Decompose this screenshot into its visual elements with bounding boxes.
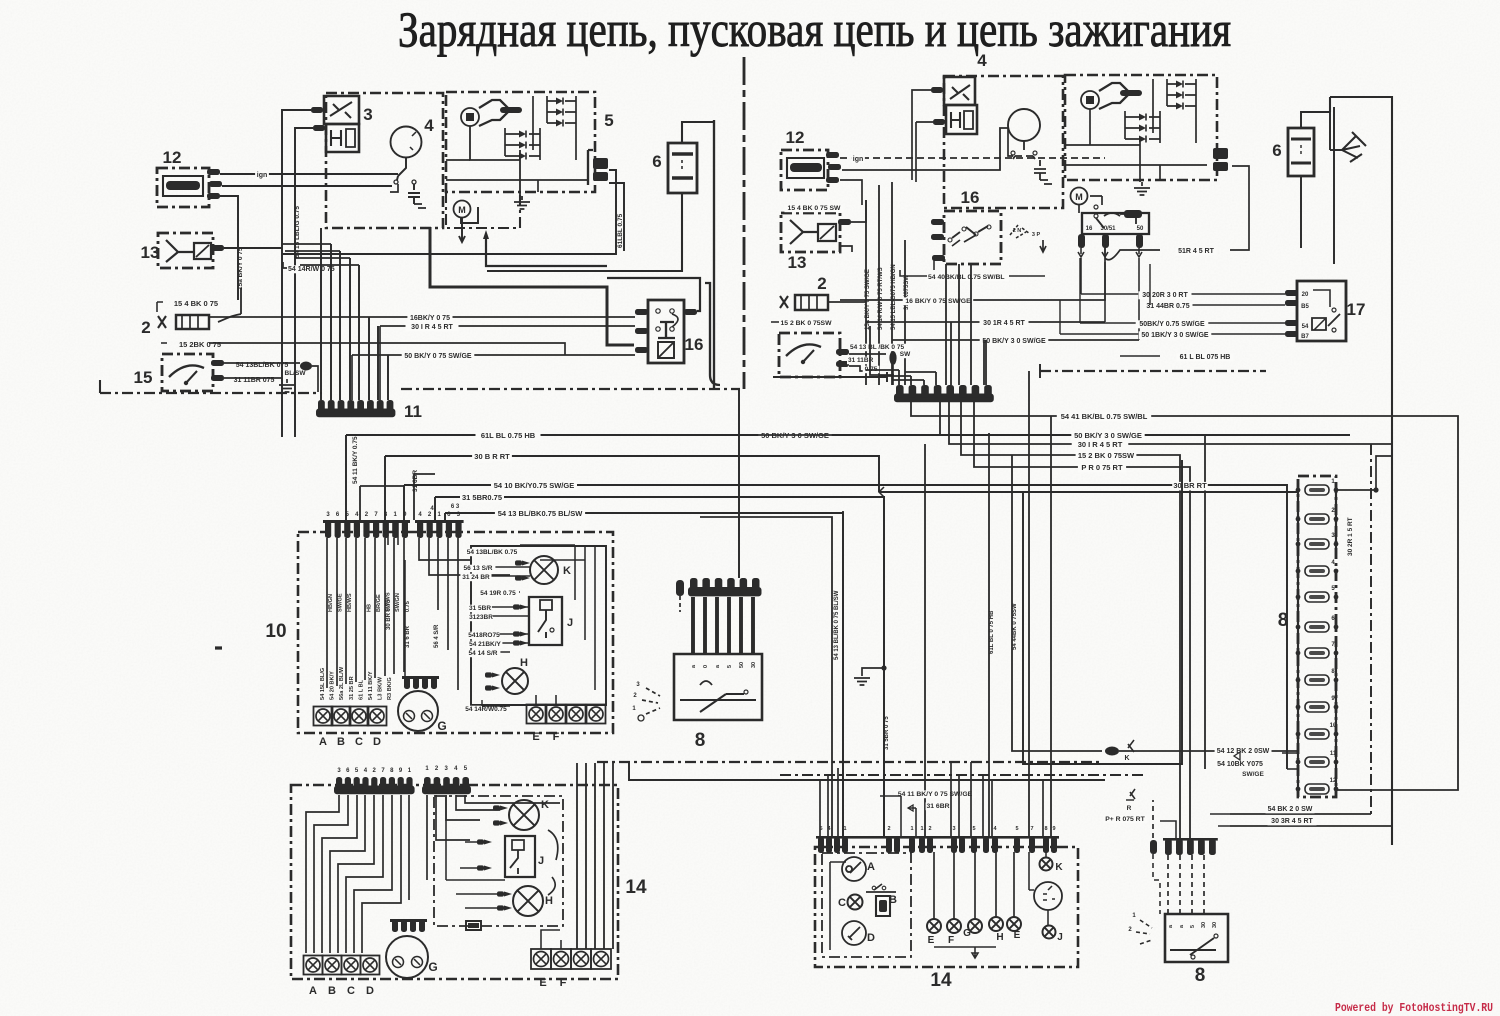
- svg-text:M: M: [458, 205, 466, 215]
- svg-text:61LBL 0.75: 61LBL 0.75: [617, 213, 624, 248]
- svg-text:30 I R 4 5 RT: 30 I R 4 5 RT: [411, 324, 453, 331]
- svg-text:13: 13: [788, 253, 807, 272]
- svg-text:54 14R/W0.75: 54 14R/W0.75: [465, 706, 507, 713]
- svg-text:50 BK/Y 0 75 SW/GE: 50 BK/Y 0 75 SW/GE: [404, 353, 472, 360]
- svg-text:31 6BR: 31 6BR: [412, 470, 419, 492]
- svg-text:31 6 BR: 31 6 BR: [405, 625, 411, 648]
- svg-text:B7: B7: [1301, 334, 1309, 340]
- svg-text:K: K: [1055, 862, 1063, 873]
- svg-text:54 13 BL /BK 0 75: 54 13 BL /BK 0 75: [850, 344, 904, 351]
- svg-text:G: G: [963, 928, 971, 939]
- svg-text:A: A: [319, 736, 327, 748]
- svg-text:M: M: [1075, 192, 1083, 202]
- svg-text:56a 2L BL/W: 56a 2L BL/W: [339, 666, 345, 700]
- svg-text:54 44BK 0 75SW: 54 44BK 0 75SW: [1012, 603, 1018, 650]
- svg-text:31 44BR 0.75: 31 44BR 0.75: [1146, 303, 1189, 310]
- svg-text:30 20R 3 0 RT: 30 20R 3 0 RT: [1142, 292, 1188, 299]
- svg-text:30 B R RT: 30 B R RT: [474, 452, 510, 461]
- svg-text:31 25 BR: 31 25 BR: [349, 676, 355, 700]
- svg-text:8: 8: [695, 730, 706, 751]
- svg-text:54 12 BK 2 0SW: 54 12 BK 2 0SW: [1217, 748, 1270, 755]
- svg-text:B5: B5: [1301, 304, 1309, 310]
- svg-text:54 15 LBL/G 0.75: 54 15 LBL/G 0.75: [294, 206, 301, 258]
- svg-text:31 6BR: 31 6BR: [926, 803, 949, 810]
- svg-text:SW/GE: SW/GE: [338, 593, 344, 612]
- svg-text:4: 4: [977, 51, 987, 70]
- svg-text:56 4 S/R: 56 4 S/R: [434, 624, 440, 648]
- svg-text:30: 30: [751, 662, 757, 668]
- svg-text:5: 5: [604, 111, 613, 130]
- svg-text:E: E: [532, 731, 539, 743]
- svg-text:A: A: [867, 861, 875, 873]
- svg-text:D: D: [373, 736, 381, 748]
- svg-text:50 1BK/Y 3 0 SW/GE: 50 1BK/Y 3 0 SW/GE: [1141, 332, 1209, 339]
- svg-text:H: H: [520, 657, 528, 669]
- svg-text:15a BK/Y 0 75: 15a BK/Y 0 75: [237, 247, 244, 290]
- svg-text:54 14 R/W 0 75 RT/WS: 54 14 R/W 0 75 RT/WS: [878, 267, 884, 330]
- svg-text:E: E: [928, 935, 935, 946]
- svg-text:6: 6: [652, 152, 661, 171]
- svg-text:F: F: [553, 731, 560, 743]
- svg-text:G: G: [428, 960, 437, 974]
- svg-text:8: 8: [1278, 610, 1289, 631]
- svg-text:16 BK/Y 0 75 SW/GE: 16 BK/Y 0 75 SW/GE: [905, 298, 971, 305]
- svg-text:31 5BR 0 75: 31 5BR 0 75: [884, 716, 890, 750]
- svg-text:A: A: [309, 985, 317, 997]
- svg-text:3: 3: [952, 826, 955, 832]
- svg-text:2: 2: [817, 274, 826, 293]
- svg-text:61L BL 0 75 HB: 61L BL 0 75 HB: [989, 610, 995, 654]
- svg-text:3: 3: [363, 105, 372, 124]
- svg-text:61 L BL 075 HB: 61 L BL 075 HB: [1180, 354, 1231, 361]
- svg-text:C: C: [355, 736, 363, 748]
- svg-text:5: 5: [1190, 925, 1196, 928]
- svg-text:54 11 BK/Y 0.75: 54 11 BK/Y 0.75: [352, 436, 359, 484]
- svg-text:J: J: [538, 855, 544, 867]
- svg-text:2: 2: [141, 318, 150, 337]
- svg-text:31 5BR: 31 5BR: [469, 605, 491, 612]
- svg-text:54 40BK/BL 0.75 SW/BL: 54 40BK/BL 0.75 SW/BL: [928, 274, 1005, 281]
- svg-text:BR/GE: BR/GE: [376, 594, 382, 612]
- svg-text:30 2R 1 5 RT: 30 2R 1 5 RT: [1347, 517, 1354, 556]
- svg-text:30: 30: [1212, 922, 1218, 928]
- svg-text:15 2 BK 0 75SW: 15 2 BK 0 75SW: [781, 320, 833, 327]
- svg-text:30 1R 4 5 RT: 30 1R 4 5 RT: [983, 320, 1025, 327]
- svg-text:H: H: [996, 932, 1003, 943]
- svg-text:F: F: [560, 977, 567, 989]
- svg-text:31 11BR 075: 31 11BR 075: [234, 377, 275, 384]
- svg-text:5418RO75: 5418RO75: [468, 632, 500, 639]
- svg-text:B: B: [337, 736, 345, 748]
- svg-text:E: E: [1014, 930, 1021, 941]
- svg-text:P R 0 75 RT: P R 0 75 RT: [1081, 463, 1123, 472]
- svg-text:16: 16: [685, 335, 704, 354]
- svg-text:ign: ign: [257, 172, 268, 179]
- svg-text:30 BR 0.75: 30 BR 0.75: [386, 599, 392, 630]
- svg-text:31 24 BR: 31 24 BR: [462, 574, 490, 581]
- svg-text:10: 10: [265, 621, 286, 642]
- svg-text:17: 17: [1347, 300, 1366, 319]
- svg-text:2: 2: [928, 826, 931, 832]
- svg-text:HB/WS: HB/WS: [347, 593, 353, 612]
- svg-text:54 21BK/Y: 54 21BK/Y: [469, 641, 501, 648]
- svg-text:16BK/Y 0 75: 16BK/Y 0 75: [410, 315, 450, 322]
- svg-text:12: 12: [1330, 778, 1337, 784]
- svg-text:ign: ign: [853, 156, 864, 163]
- svg-text:54 14R/W 0 75: 54 14R/W 0 75: [288, 266, 335, 273]
- svg-text:J: J: [1057, 932, 1063, 943]
- svg-text:H: H: [545, 895, 553, 907]
- svg-text:12: 12: [786, 128, 805, 147]
- svg-text:54 13 BL/BK 0 75 BL/SW: 54 13 BL/BK 0 75 BL/SW: [834, 590, 840, 660]
- svg-text:8: 8: [1044, 826, 1047, 832]
- svg-text:54 15 LBL/G075 HB/GN: 54 15 LBL/G075 HB/GN: [891, 264, 897, 330]
- svg-text:54 BK 2 0 SW: 54 BK 2 0 SW: [1268, 806, 1313, 813]
- svg-text:10: 10: [1330, 723, 1337, 729]
- svg-text:15 4 BK 0 75 SW: 15 4 BK 0 75 SW: [788, 205, 841, 212]
- svg-text:HB: HB: [366, 604, 372, 612]
- svg-text:30 BR RT: 30 BR RT: [1173, 481, 1207, 490]
- svg-text:SW/GE: SW/GE: [1242, 771, 1264, 778]
- svg-text:50: 50: [1137, 226, 1144, 232]
- svg-text:14: 14: [625, 877, 647, 898]
- svg-text:1: 1: [910, 826, 913, 832]
- svg-text:54 11 BK/Y 0 75 SW/GE: 54 11 BK/Y 0 75 SW/GE: [898, 791, 973, 798]
- svg-text:61 L BL: 61 L BL: [358, 679, 364, 700]
- svg-text:54 41 BK/BL 0.75 SW/BL: 54 41 BK/BL 0.75 SW/BL: [1061, 412, 1148, 421]
- svg-text:2: 2: [887, 826, 890, 832]
- svg-text:50: 50: [739, 662, 745, 668]
- svg-text:54 13 BL/BK0.75 BL/SW: 54 13 BL/BK0.75 BL/SW: [498, 509, 584, 518]
- svg-text:E: E: [539, 977, 546, 989]
- svg-text:P+ R 075 RT: P+ R 075 RT: [1105, 816, 1145, 823]
- svg-text:54 13BL/BK 075: 54 13BL/BK 075: [236, 362, 289, 369]
- svg-text:50 BK/Y 3 0 SW/GE: 50 BK/Y 3 0 SW/GE: [982, 338, 1046, 345]
- svg-text:B: B: [889, 894, 897, 906]
- svg-text:54 20 BK/Y: 54 20 BK/Y: [330, 671, 336, 700]
- svg-text:16: 16: [1086, 226, 1093, 232]
- svg-text:SW/GN: SW/GN: [395, 593, 401, 612]
- svg-text:54 11 BK/Y: 54 11 BK/Y: [368, 671, 374, 700]
- svg-text:D: D: [867, 932, 875, 944]
- svg-text:R: R: [1127, 805, 1132, 812]
- svg-text:30: 30: [1201, 922, 1207, 928]
- svg-text:16: 16: [961, 188, 980, 207]
- svg-text:54 14 S/R: 54 14 S/R: [469, 650, 498, 657]
- svg-text:54 13BL/BK 0.75: 54 13BL/BK 0.75: [467, 549, 518, 556]
- svg-text:30 I R 4 5 RT: 30 I R 4 5 RT: [1078, 440, 1123, 449]
- svg-text:54 19R 0.75: 54 19R 0.75: [480, 590, 516, 597]
- svg-text:15 4 BK 0 75: 15 4 BK 0 75: [174, 299, 218, 308]
- svg-text:11: 11: [404, 402, 422, 421]
- svg-text:D: D: [366, 985, 374, 997]
- svg-text:11: 11: [1330, 751, 1337, 757]
- svg-text:50 BK/Y 3 0 SW/GE: 50 BK/Y 3 0 SW/GE: [1074, 431, 1142, 440]
- svg-text:2 N: 2 N: [1013, 228, 1022, 234]
- svg-text:1: 1: [920, 826, 923, 832]
- svg-text:J: J: [567, 617, 573, 629]
- svg-text:51R 4 5 RT: 51R 4 5 RT: [1178, 248, 1215, 255]
- svg-text:C: C: [347, 985, 355, 997]
- svg-text:5: 5: [727, 665, 733, 668]
- svg-text:14: 14: [930, 970, 952, 991]
- svg-text:F: F: [948, 935, 954, 946]
- svg-text:Зарядная цепь, пусковая цепь и: Зарядная цепь, пусковая цепь и цепь зажи…: [398, 1, 1231, 57]
- svg-text:B: B: [328, 985, 336, 997]
- svg-text:20: 20: [1302, 292, 1309, 298]
- svg-text:4: 4: [424, 116, 434, 135]
- svg-text:R3 BK/G: R3 BK/G: [387, 677, 393, 700]
- svg-text:C: C: [838, 897, 846, 909]
- svg-text:K: K: [563, 565, 571, 577]
- svg-text:5: 5: [1015, 826, 1018, 832]
- svg-text:54: 54: [1302, 324, 1309, 330]
- svg-text:3 P: 3 P: [1032, 232, 1041, 238]
- svg-text:9: 9: [1052, 826, 1055, 832]
- svg-text:12: 12: [163, 148, 182, 167]
- svg-text:3123BR: 3123BR: [469, 614, 493, 621]
- svg-text:K: K: [541, 799, 549, 811]
- svg-text:7: 7: [1030, 826, 1033, 832]
- svg-text:56 13 S/R: 56 13 S/R: [464, 565, 493, 572]
- svg-text:K: K: [1124, 755, 1129, 762]
- svg-text:6 3: 6 3: [451, 504, 460, 510]
- svg-text:SW: SW: [900, 351, 911, 358]
- svg-text:15 2 BK 0 75SW: 15 2 BK 0 75SW: [1078, 451, 1135, 460]
- svg-text:30 3R 4 5 RT: 30 3R 4 5 RT: [1271, 818, 1313, 825]
- svg-text:5: 5: [972, 826, 975, 832]
- svg-text:15 2BK 0 75: 15 2BK 0 75: [179, 340, 221, 349]
- svg-text:54 10 BK/Y0.75 SW/GE: 54 10 BK/Y0.75 SW/GE: [494, 481, 574, 490]
- svg-text:54 15L BL/G: 54 15L BL/G: [320, 668, 326, 700]
- svg-text:0: 0: [703, 665, 709, 668]
- svg-text:HB/GN: HB/GN: [328, 594, 334, 612]
- svg-text:61L BL 0.75 HB: 61L BL 0.75 HB: [481, 431, 536, 440]
- svg-text:8: 8: [1195, 965, 1206, 986]
- svg-text:54 10BK Y075: 54 10BK Y075: [1217, 761, 1263, 768]
- svg-text:G: G: [437, 719, 446, 733]
- svg-text:L3 BK/W: L3 BK/W: [378, 676, 384, 700]
- svg-text:6: 6: [1272, 141, 1281, 160]
- svg-text:1: 1: [843, 826, 846, 832]
- svg-text:50BK/Y 0.75 SW/GE: 50BK/Y 0.75 SW/GE: [1139, 321, 1205, 328]
- svg-text:15: 15: [134, 368, 153, 387]
- svg-text:Powered by FotoHostingTV.RU: Powered by FotoHostingTV.RU: [1335, 1001, 1493, 1015]
- svg-text:31 5BR0.75: 31 5BR0.75: [462, 493, 502, 502]
